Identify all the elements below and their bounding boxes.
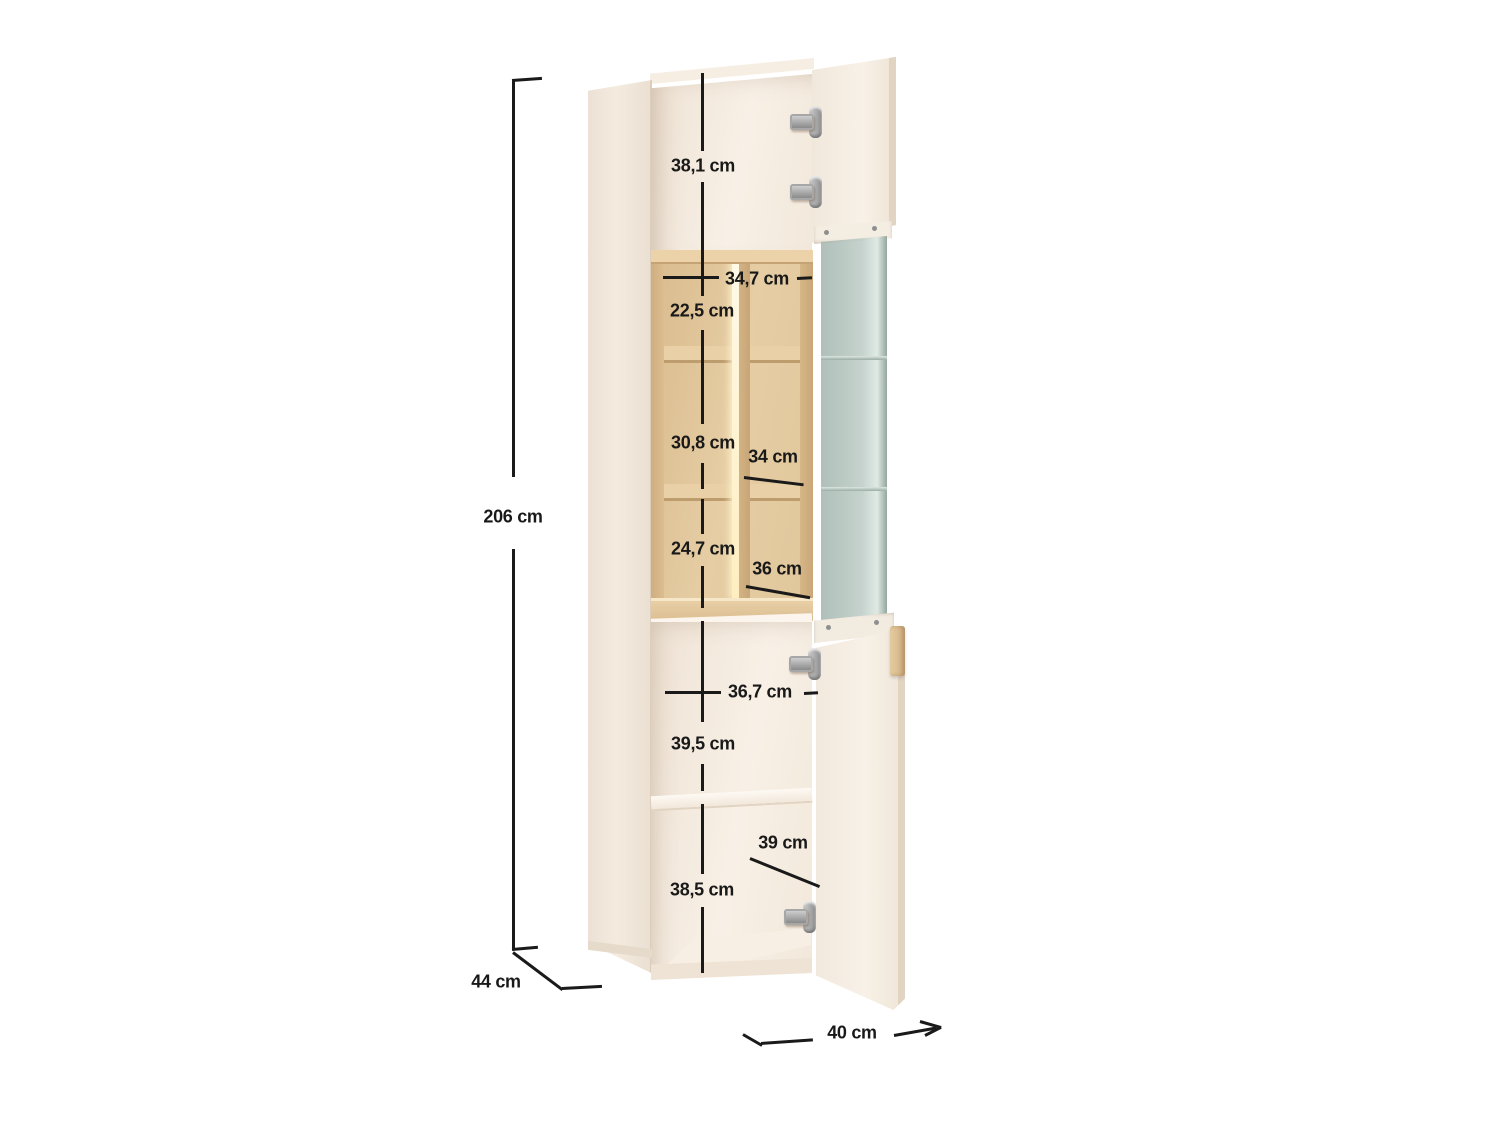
dim-hook-40 — [742, 1033, 763, 1047]
dim-line-39-5-lower — [701, 804, 704, 874]
dim-line-24-7 — [701, 566, 704, 608]
dim-label-cubby-top-height: 22,5 cm — [670, 301, 734, 322]
bottom-door-edge — [898, 626, 905, 1010]
dim-tick-206-top — [512, 77, 542, 82]
wood-right-wall — [800, 250, 813, 618]
glass-door-pane — [821, 236, 887, 624]
hinge-icon — [790, 106, 824, 138]
furniture-dimension-diagram: 38,1 cm 34,7 cm 22,5 cm 30,8 cm 34 cm 24… — [0, 0, 1499, 1124]
dim-label-cubby-bottom-height: 24,7 cm — [671, 539, 735, 560]
dim-dash-36-7 — [804, 691, 818, 695]
dim-line-30-8-upper — [701, 463, 704, 489]
dim-tick-44 — [512, 946, 538, 951]
bottom-door-open — [816, 626, 905, 1010]
dim-line-34-7 — [663, 276, 719, 279]
dim-label-lower-inner-width: 36,7 cm — [728, 682, 792, 703]
dim-line-30-8-lower — [701, 499, 704, 534]
wood-top-bar — [651, 250, 813, 264]
dim-line-38-5 — [701, 907, 704, 973]
dim-label-bottom-section-height: 38,5 cm — [670, 880, 734, 901]
hinge-icon — [790, 176, 824, 208]
dim-tail-44 — [562, 985, 602, 990]
glass-shelf-line — [821, 356, 887, 360]
dim-label-top-section-height: 38,1 cm — [671, 156, 735, 177]
dim-line-36-7-vertical — [701, 621, 704, 722]
dim-label-middle-shelf-depth: 34 cm — [748, 447, 798, 468]
hinge-icon — [784, 901, 818, 933]
dim-line-206-upper — [512, 79, 515, 477]
dim-line-39-5-upper — [701, 764, 704, 791]
hinge-icon — [789, 648, 823, 680]
wood-left-wall — [651, 250, 664, 618]
cabinet-left-side-panel — [588, 80, 652, 977]
door-handle-wood — [890, 626, 905, 676]
dim-label-total-height: 206 cm — [483, 507, 542, 528]
dim-line-40-left — [761, 1038, 813, 1045]
dim-label-total-width: 40 cm — [827, 1023, 877, 1044]
glass-shelf-line — [821, 487, 887, 491]
dim-line-206-lower — [512, 549, 515, 950]
dim-label-cubby-middle-height: 30,8 cm — [671, 433, 735, 454]
wood-center-divider — [739, 262, 750, 598]
dim-label-bottom-shelf-depth: 39 cm — [758, 833, 808, 854]
top-door-open — [812, 55, 896, 243]
dim-line-38-1-upper — [701, 73, 704, 151]
dim-label-lower-shelf-depth: 36 cm — [752, 559, 802, 580]
top-door-edge — [889, 55, 896, 243]
dim-label-lower-section-height: 39,5 cm — [671, 734, 735, 755]
dim-label-upper-inner-width: 34,7 cm — [725, 269, 789, 290]
dim-line-22-5 — [701, 330, 704, 424]
dim-line-36-7 — [665, 691, 721, 694]
dim-label-total-depth: 44 cm — [471, 972, 521, 993]
